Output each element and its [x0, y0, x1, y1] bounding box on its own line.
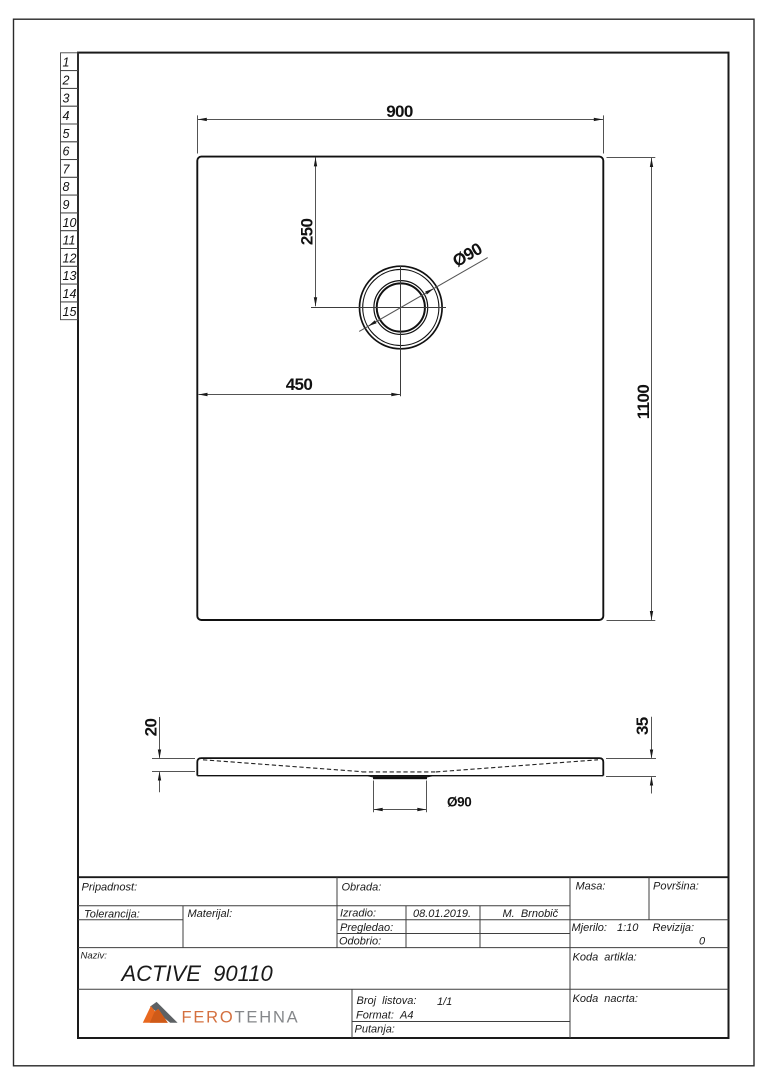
svg-text:9: 9 — [63, 198, 70, 212]
svg-text:2: 2 — [62, 74, 70, 88]
svg-text:FEROTEHNA: FEROTEHNA — [182, 1009, 300, 1027]
svg-text:Masa:: Masa: — [576, 881, 606, 893]
svg-text:1: 1 — [63, 56, 70, 70]
svg-text:10: 10 — [63, 216, 77, 230]
svg-text:Ø90: Ø90 — [447, 795, 471, 810]
svg-text:08.01.2019.: 08.01.2019. — [413, 908, 471, 920]
svg-text:3: 3 — [63, 91, 70, 105]
svg-text:Revizija:: Revizija: — [653, 922, 695, 934]
svg-text:M. Brnobič: M. Brnobič — [503, 908, 559, 920]
svg-text:5: 5 — [63, 127, 70, 141]
svg-text:Pregledao:: Pregledao: — [340, 922, 393, 934]
svg-text:13: 13 — [63, 269, 77, 283]
svg-text:Tolerancija:: Tolerancija: — [84, 909, 140, 921]
svg-text:35: 35 — [633, 717, 652, 735]
svg-text:20: 20 — [141, 719, 160, 737]
svg-text:Obrada:: Obrada: — [342, 882, 382, 894]
svg-text:Koda artikla:: Koda artikla: — [573, 952, 637, 964]
svg-text:Površina:: Površina: — [653, 881, 699, 893]
svg-text:Mjerilo:: Mjerilo: — [572, 922, 607, 934]
svg-text:1:10: 1:10 — [617, 922, 639, 934]
svg-text:Broj listova:: Broj listova: — [357, 995, 417, 1007]
svg-text:Koda nacrta:: Koda nacrta: — [573, 993, 638, 1005]
svg-text:14: 14 — [63, 287, 77, 301]
svg-text:12: 12 — [63, 251, 77, 265]
svg-text:Putanja:: Putanja: — [355, 1024, 395, 1036]
svg-text:1100: 1100 — [634, 385, 653, 420]
svg-text:Pripadnost:: Pripadnost: — [82, 882, 138, 894]
svg-text:4: 4 — [63, 109, 70, 123]
svg-text:Materijal:: Materijal: — [188, 908, 233, 920]
svg-text:Izradio:: Izradio: — [340, 908, 376, 920]
svg-text:1/1: 1/1 — [437, 996, 452, 1008]
svg-text:7: 7 — [63, 162, 71, 176]
svg-text:Odobrio:: Odobrio: — [339, 935, 381, 947]
svg-text:15: 15 — [63, 305, 77, 319]
svg-text:0: 0 — [699, 935, 706, 947]
svg-text:900: 900 — [386, 102, 413, 121]
svg-text:11: 11 — [63, 234, 76, 248]
svg-text:8: 8 — [63, 180, 70, 194]
svg-text:Format: A4: Format: A4 — [356, 1010, 413, 1022]
svg-text:450: 450 — [286, 375, 313, 394]
svg-text:ACTIVE 90110: ACTIVE 90110 — [120, 961, 274, 986]
svg-text:6: 6 — [63, 145, 70, 159]
svg-text:Naziv:: Naziv: — [81, 951, 108, 962]
svg-text:250: 250 — [298, 218, 317, 245]
